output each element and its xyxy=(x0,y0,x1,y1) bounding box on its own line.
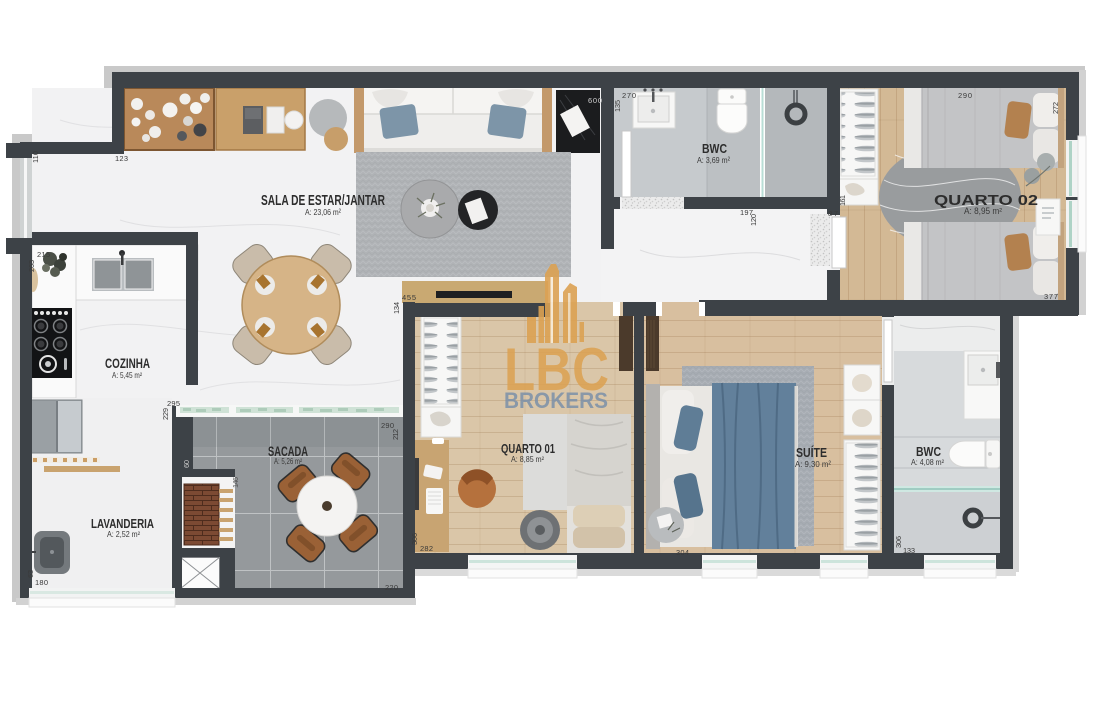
svg-text:A: 4,08 m²: A: 4,08 m² xyxy=(911,458,944,467)
svg-text:306: 306 xyxy=(894,536,903,548)
svg-text:QUARTO 01: QUARTO 01 xyxy=(501,442,555,456)
svg-text:120: 120 xyxy=(749,214,758,226)
svg-text:455: 455 xyxy=(402,293,416,302)
svg-text:263: 263 xyxy=(27,260,36,272)
svg-text:BWC: BWC xyxy=(702,141,727,156)
svg-text:270: 270 xyxy=(622,91,636,100)
svg-text:272: 272 xyxy=(1051,102,1060,114)
svg-text:123: 123 xyxy=(115,154,128,163)
svg-text:229: 229 xyxy=(161,408,170,420)
svg-text:A: 5,26 m²: A: 5,26 m² xyxy=(274,457,302,466)
svg-text:290: 290 xyxy=(958,91,972,100)
svg-text:SUÍTE: SUÍTE xyxy=(796,445,827,460)
svg-text:133: 133 xyxy=(903,546,915,555)
svg-text:304: 304 xyxy=(676,548,689,557)
svg-text:377: 377 xyxy=(1044,292,1058,301)
svg-text:A: 2,52 m²: A: 2,52 m² xyxy=(107,530,140,539)
svg-text:A: 3,69 m²: A: 3,69 m² xyxy=(697,155,730,165)
svg-text:BWC: BWC xyxy=(916,444,941,459)
svg-text:290: 290 xyxy=(381,421,394,430)
svg-text:63: 63 xyxy=(26,570,35,578)
svg-text:146: 146 xyxy=(231,477,240,488)
svg-text:LAVANDERIA: LAVANDERIA xyxy=(91,516,154,531)
svg-text:COZINHA: COZINHA xyxy=(105,355,150,371)
svg-text:282: 282 xyxy=(420,544,433,553)
svg-text:A: 9,30 m²: A: 9,30 m² xyxy=(795,459,831,469)
svg-text:A: 8,85 m²: A: 8,85 m² xyxy=(511,455,544,464)
svg-text:180: 180 xyxy=(35,578,48,587)
svg-text:212: 212 xyxy=(391,429,400,440)
svg-text:60: 60 xyxy=(182,460,191,468)
svg-text:600: 600 xyxy=(588,96,602,105)
svg-text:220: 220 xyxy=(385,583,398,592)
svg-text:BROKERS: BROKERS xyxy=(504,388,608,413)
svg-text:161: 161 xyxy=(838,195,847,206)
svg-text:135: 135 xyxy=(613,100,622,112)
svg-text:306: 306 xyxy=(410,533,419,545)
svg-text:134: 134 xyxy=(392,302,401,314)
svg-text:295: 295 xyxy=(167,399,180,408)
svg-text:215: 215 xyxy=(37,250,50,259)
svg-text:110: 110 xyxy=(31,151,40,163)
svg-text:87: 87 xyxy=(828,209,838,218)
svg-text:A: 23,06 m²: A: 23,06 m² xyxy=(305,207,341,217)
svg-text:A: 8,95 m²: A: 8,95 m² xyxy=(964,206,1002,216)
svg-text:A: 5,45 m²: A: 5,45 m² xyxy=(112,371,142,380)
